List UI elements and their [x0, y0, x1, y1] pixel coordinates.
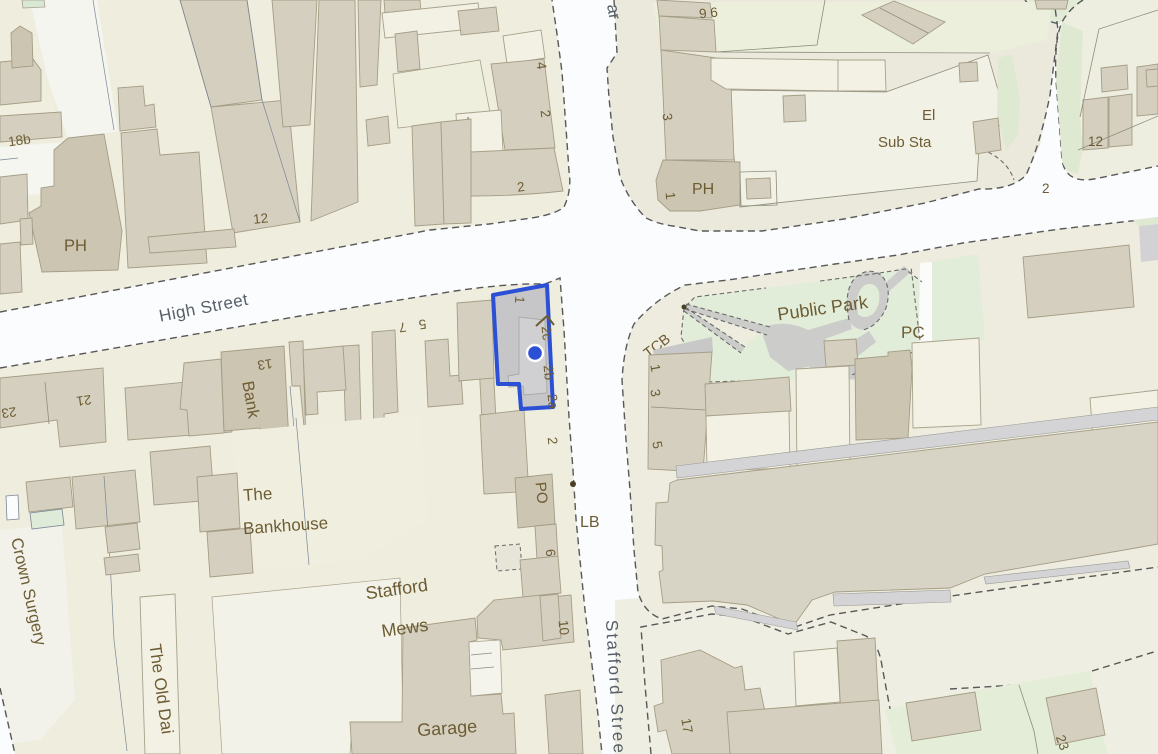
svg-text:23: 23: [0, 404, 17, 421]
svg-text:9 6: 9 6: [698, 4, 718, 21]
svg-text:2a: 2a: [545, 393, 562, 410]
svg-text:6: 6: [543, 548, 559, 557]
svg-text:10: 10: [556, 619, 572, 636]
svg-text:1: 1: [663, 191, 679, 200]
svg-text:3: 3: [660, 112, 676, 121]
svg-text:21: 21: [75, 392, 92, 409]
svg-text:12: 12: [1088, 134, 1103, 149]
svg-text:2c: 2c: [539, 325, 555, 341]
svg-text:The: The: [242, 484, 273, 505]
svg-text:1: 1: [512, 295, 528, 304]
svg-text:PC: PC: [901, 323, 925, 342]
svg-text:2: 2: [1042, 181, 1050, 196]
svg-text:Sub Sta: Sub Sta: [878, 134, 932, 151]
svg-text:13: 13: [256, 356, 273, 373]
svg-text:2: 2: [545, 436, 561, 445]
svg-text:18b: 18b: [7, 131, 31, 149]
svg-text:PH: PH: [692, 181, 714, 198]
svg-text:2b: 2b: [541, 364, 557, 381]
svg-text:PO: PO: [532, 481, 551, 504]
svg-text:17: 17: [678, 717, 695, 734]
svg-text:12: 12: [252, 210, 269, 226]
svg-text:LB: LB: [580, 514, 600, 531]
svg-text:El: El: [922, 107, 935, 124]
svg-text:Garage: Garage: [416, 716, 477, 740]
svg-text:PH: PH: [64, 237, 87, 255]
